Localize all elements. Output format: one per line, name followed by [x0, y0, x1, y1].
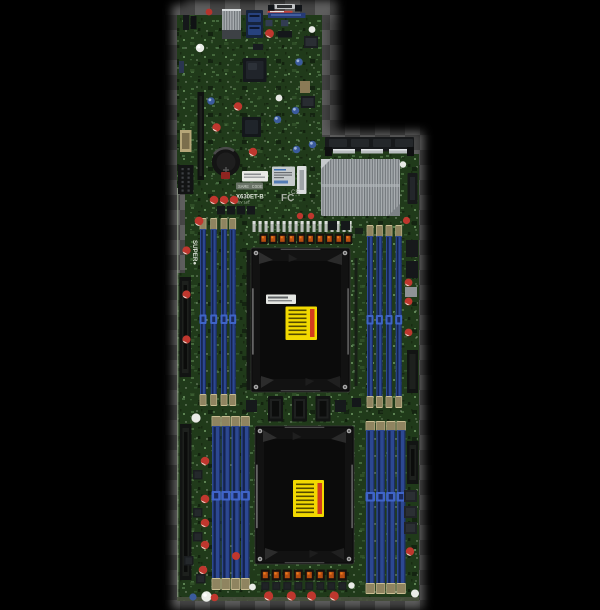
svg-text:SUPER●: SUPER●	[191, 240, 198, 265]
svg-text:SAME CODE: SAME CODE	[238, 184, 263, 190]
svg-text:CE: CE	[291, 190, 299, 196]
